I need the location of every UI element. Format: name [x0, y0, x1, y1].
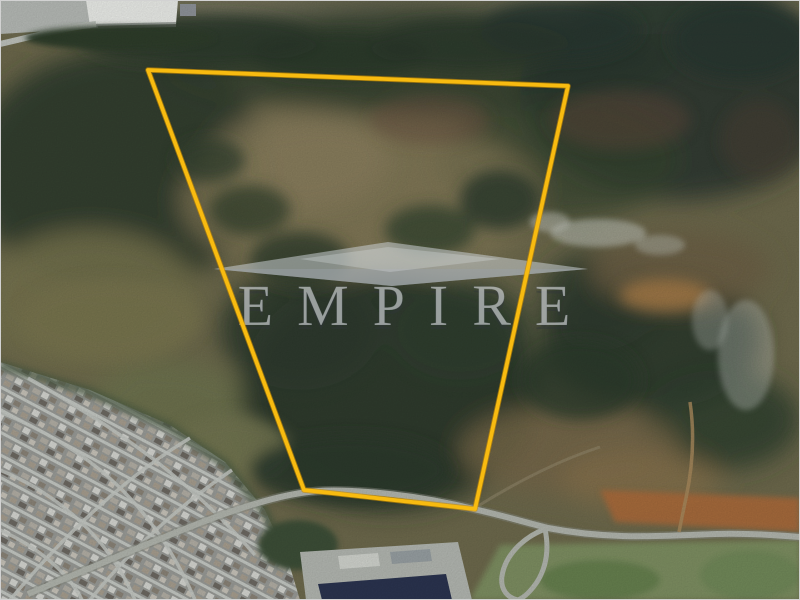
watermark-text: EMPIRE: [238, 273, 595, 338]
satellite-photo: EMPIRE EMPIRE: [0, 0, 800, 600]
satellite-map-image: EMPIRE EMPIRE: [0, 0, 800, 600]
